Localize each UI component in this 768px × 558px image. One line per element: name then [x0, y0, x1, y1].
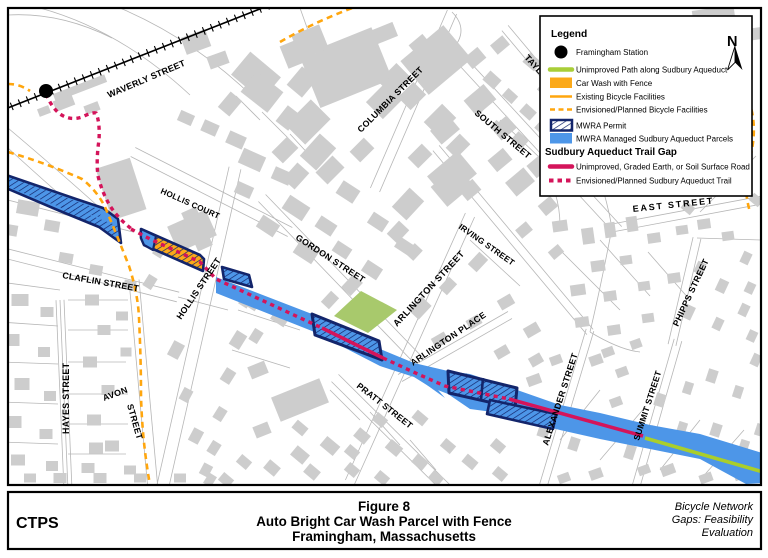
- svg-text:MWRA Managed Sudbury Aqueduct: MWRA Managed Sudbury Aqueduct Parcels: [576, 135, 733, 144]
- svg-text:Gaps: Feasibility: Gaps: Feasibility: [672, 514, 755, 526]
- svg-text:MWRA Permit: MWRA Permit: [576, 122, 627, 131]
- svg-text:Auto Bright Car Wash Parcel wi: Auto Bright Car Wash Parcel with Fence: [256, 514, 511, 529]
- svg-text:Evaluation: Evaluation: [702, 527, 753, 539]
- svg-text:Existing Bicycle Facilities: Existing Bicycle Facilities: [576, 93, 665, 102]
- svg-text:Sudbury Aqueduct Trail Gap: Sudbury Aqueduct Trail Gap: [545, 147, 677, 158]
- svg-text:Unimproved, Graded Earth, or S: Unimproved, Graded Earth, or Soil Surfac…: [576, 163, 750, 172]
- svg-text:Envisioned/Planned Sudbury Aqu: Envisioned/Planned Sudbury Aqueduct Trai…: [576, 177, 732, 186]
- svg-text:Framingham, Massachusetts: Framingham, Massachusetts: [292, 529, 476, 544]
- svg-text:CTPS: CTPS: [16, 515, 59, 532]
- svg-text:Car Wash with Fence: Car Wash with Fence: [576, 79, 653, 88]
- svg-text:Bicycle Network: Bicycle Network: [675, 501, 754, 513]
- svg-text:HAYES STREET: HAYES STREET: [61, 362, 71, 434]
- svg-text:Framingham Station: Framingham Station: [576, 48, 648, 57]
- svg-text:Unimproved Path along Sudbury: Unimproved Path along Sudbury Aqueduct: [576, 66, 728, 75]
- svg-text:Figure 8: Figure 8: [358, 499, 411, 514]
- svg-text:Envisioned/Planned Bicycle Fac: Envisioned/Planned Bicycle Facilities: [576, 106, 708, 115]
- svg-text:N: N: [727, 34, 737, 50]
- svg-text:Legend: Legend: [551, 29, 587, 40]
